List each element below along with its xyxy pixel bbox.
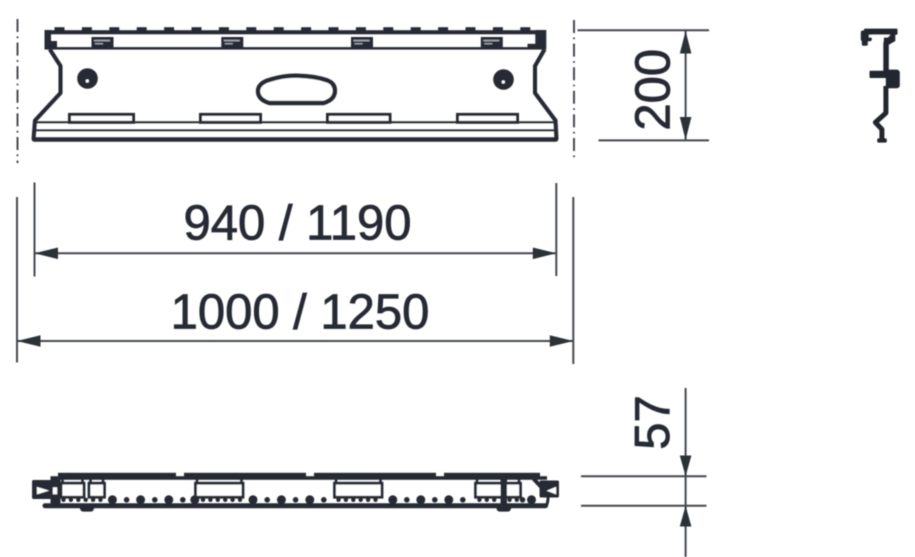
svg-text:200: 200 — [627, 49, 681, 131]
svg-text:57: 57 — [626, 395, 680, 450]
svg-text:940 / 1190: 940 / 1190 — [184, 197, 412, 251]
svg-text:1000 / 1250: 1000 / 1250 — [171, 286, 430, 340]
